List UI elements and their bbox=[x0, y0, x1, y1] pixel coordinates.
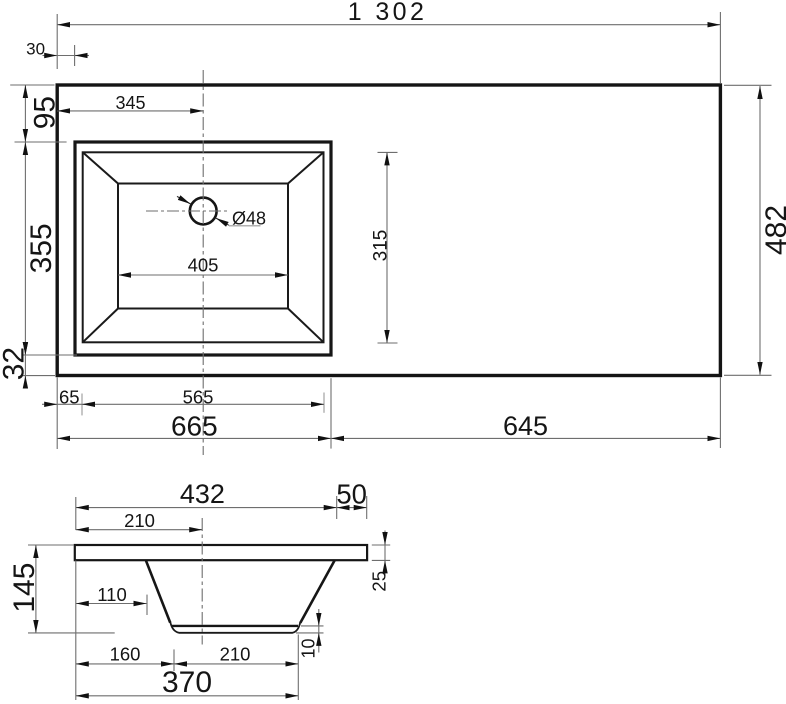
svg-text:345: 345 bbox=[115, 93, 145, 113]
svg-text:145: 145 bbox=[8, 563, 41, 613]
svg-text:565: 565 bbox=[183, 386, 214, 407]
svg-text:355: 355 bbox=[25, 223, 58, 273]
svg-text:110: 110 bbox=[97, 584, 127, 605]
svg-text:95: 95 bbox=[28, 96, 61, 129]
svg-text:1 302: 1 302 bbox=[348, 0, 428, 26]
svg-text:50: 50 bbox=[336, 478, 367, 509]
svg-text:Ø48: Ø48 bbox=[232, 208, 266, 228]
svg-text:315: 315 bbox=[370, 230, 391, 262]
svg-text:32: 32 bbox=[0, 347, 30, 380]
svg-text:405: 405 bbox=[188, 254, 219, 275]
svg-text:432: 432 bbox=[180, 479, 225, 509]
svg-text:30: 30 bbox=[26, 40, 45, 59]
svg-text:665: 665 bbox=[171, 410, 218, 441]
svg-text:210: 210 bbox=[124, 510, 155, 531]
svg-text:370: 370 bbox=[162, 666, 212, 699]
svg-text:10: 10 bbox=[299, 638, 319, 658]
svg-text:482: 482 bbox=[760, 205, 786, 255]
svg-text:25: 25 bbox=[369, 571, 390, 592]
svg-text:645: 645 bbox=[503, 411, 548, 441]
svg-text:210: 210 bbox=[220, 643, 251, 664]
svg-text:65: 65 bbox=[59, 386, 80, 407]
svg-text:160: 160 bbox=[110, 643, 141, 664]
